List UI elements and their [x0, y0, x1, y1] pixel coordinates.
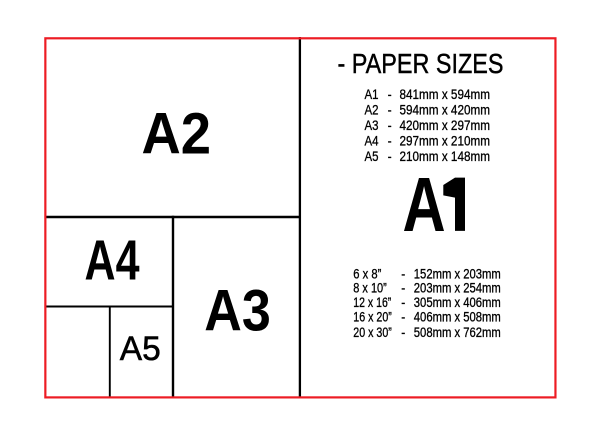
- svg-text:-: -: [388, 133, 392, 148]
- svg-text:A4: A4: [85, 230, 140, 293]
- svg-text:-: -: [401, 325, 405, 340]
- svg-text:A1: A1: [365, 87, 379, 102]
- svg-text:-: -: [388, 103, 392, 118]
- svg-text:A2: A2: [365, 103, 379, 118]
- svg-text:A3: A3: [204, 278, 271, 343]
- svg-text:A2: A2: [142, 102, 212, 167]
- svg-text:152mm x 203mm: 152mm x 203mm: [414, 266, 501, 281]
- svg-text:A4: A4: [365, 133, 379, 148]
- svg-text:-: -: [388, 118, 392, 133]
- svg-text:A5: A5: [120, 330, 161, 368]
- svg-text:A5: A5: [365, 149, 379, 164]
- svg-text:8 x 10”: 8 x 10”: [353, 281, 387, 296]
- svg-text:-: -: [401, 295, 405, 310]
- svg-text:-: -: [388, 87, 392, 102]
- svg-text:-: -: [401, 281, 405, 296]
- svg-text:6 x 8”: 6 x 8”: [353, 266, 381, 281]
- svg-text:- PAPER SIZES: - PAPER SIZES: [338, 48, 504, 79]
- svg-text:A3: A3: [365, 118, 379, 133]
- svg-text:-: -: [401, 310, 405, 325]
- svg-text:203mm x 254mm: 203mm x 254mm: [414, 281, 501, 296]
- svg-text:12 x 16”: 12 x 16”: [353, 295, 391, 310]
- svg-text:305mm x 406mm: 305mm x 406mm: [414, 295, 501, 310]
- svg-text:16 x 20”: 16 x 20”: [353, 310, 392, 325]
- svg-text:594mm x 420mm: 594mm x 420mm: [400, 103, 491, 118]
- svg-text:297mm x 210mm: 297mm x 210mm: [400, 133, 491, 148]
- svg-text:508mm x 762mm: 508mm x 762mm: [414, 325, 501, 340]
- svg-text:420mm x 297mm: 420mm x 297mm: [400, 118, 491, 133]
- svg-text:-: -: [388, 149, 392, 164]
- svg-text:841mm x 594mm: 841mm x 594mm: [400, 87, 491, 102]
- svg-text:20 x 30”: 20 x 30”: [353, 325, 392, 340]
- svg-text:A: A: [403, 162, 446, 248]
- svg-text:406mm x 508mm: 406mm x 508mm: [414, 310, 501, 325]
- svg-text:-: -: [401, 266, 405, 281]
